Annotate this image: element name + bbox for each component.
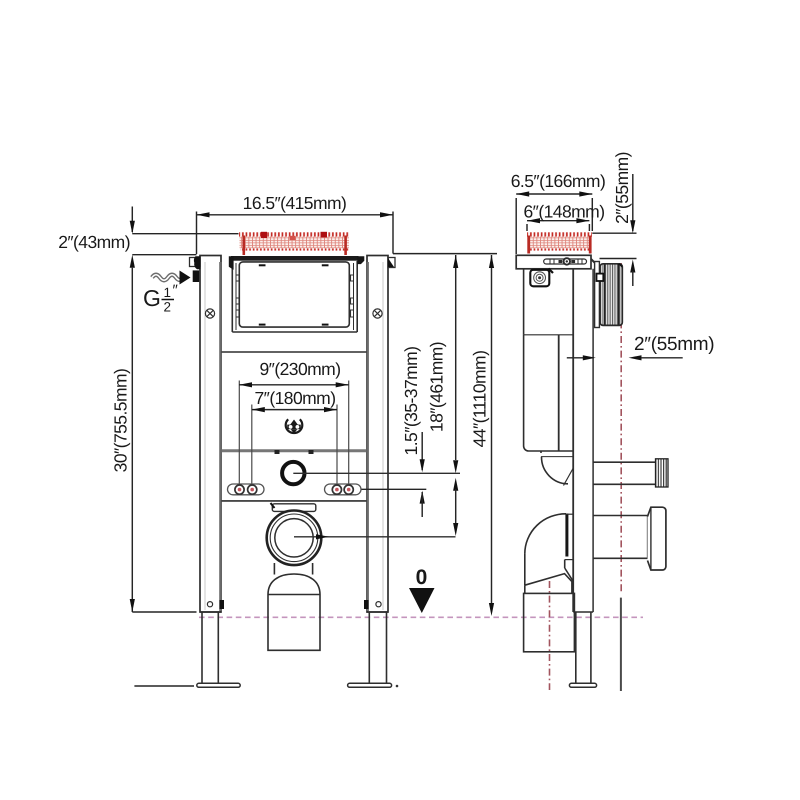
svg-text:6″(148mm): 6″(148mm): [524, 202, 605, 222]
svg-text:2″(43mm): 2″(43mm): [58, 232, 130, 252]
svg-text:44″(1110mm): 44″(1110mm): [470, 351, 490, 448]
svg-text:30″(755.5mm): 30″(755.5mm): [111, 369, 131, 473]
svg-text:1: 1: [164, 285, 172, 300]
svg-text:2″(55mm): 2″(55mm): [634, 334, 714, 355]
svg-text:6.5″(166mm): 6.5″(166mm): [511, 171, 605, 191]
svg-text:9″(230mm): 9″(230mm): [260, 359, 341, 379]
svg-text:16.5″(415mm): 16.5″(415mm): [243, 193, 347, 213]
svg-text:7″(180mm): 7″(180mm): [255, 388, 336, 408]
svg-text:18″(461mm): 18″(461mm): [427, 342, 447, 432]
svg-text:0: 0: [416, 566, 428, 589]
svg-text:1.5″(35-37mm): 1.5″(35-37mm): [401, 347, 421, 456]
svg-text:″: ″: [173, 282, 179, 299]
svg-text:2: 2: [164, 300, 172, 315]
svg-text:2″(55mm): 2″(55mm): [612, 152, 632, 224]
svg-text:G: G: [143, 285, 161, 311]
